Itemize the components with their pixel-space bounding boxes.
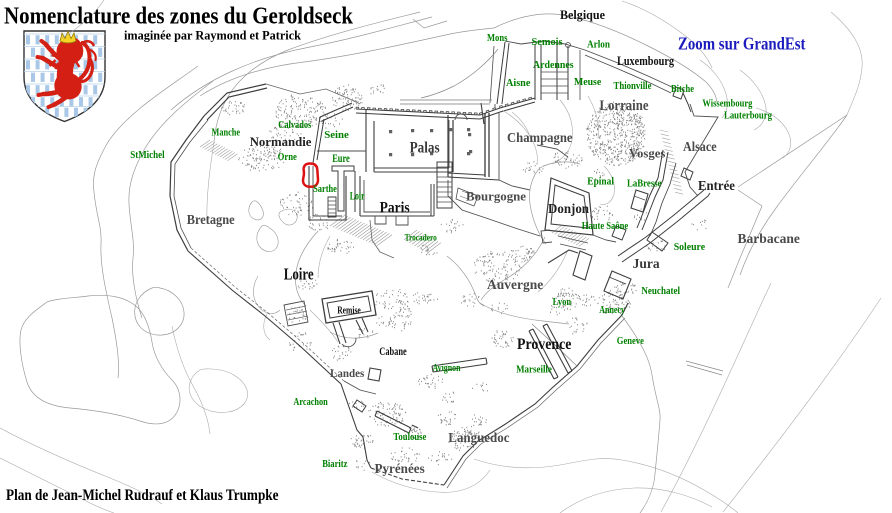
svg-text:Bitche: Bitche <box>671 83 694 95</box>
svg-text:Thionville: Thionville <box>614 81 652 92</box>
svg-text:Arcachon: Arcachon <box>293 397 328 408</box>
svg-text:StMichel: StMichel <box>130 150 165 161</box>
svg-text:Neuchatel: Neuchatel <box>641 285 680 297</box>
svg-text:Biaritz: Biaritz <box>322 459 348 470</box>
svg-text:Plan de Jean-Michel Rudrauf et: Plan de Jean-Michel Rudrauf et Klaus Tru… <box>6 487 279 504</box>
svg-text:Nomenclature des zones du Gero: Nomenclature des zones du Geroldseck <box>4 3 353 30</box>
svg-text:Epinal: Epinal <box>587 177 614 188</box>
svg-text:Belgique: Belgique <box>560 8 605 22</box>
svg-text:Sarthe: Sarthe <box>313 183 337 195</box>
svg-text:Haute Saône: Haute Saône <box>582 221 629 232</box>
svg-text:Calvados: Calvados <box>278 119 312 131</box>
svg-text:Mons: Mons <box>487 32 508 44</box>
svg-text:Entrée: Entrée <box>698 179 735 194</box>
svg-text:LaBresse: LaBresse <box>627 179 662 190</box>
svg-text:Aisne: Aisne <box>506 77 531 89</box>
svg-text:Annecy: Annecy <box>599 304 625 316</box>
svg-text:Paris: Paris <box>380 199 410 216</box>
svg-text:Arlon: Arlon <box>587 39 610 51</box>
svg-text:Bretagne: Bretagne <box>187 213 235 228</box>
svg-text:Zoom sur GrandEst: Zoom sur GrandEst <box>678 33 806 53</box>
svg-text:Geneve: Geneve <box>617 336 644 347</box>
svg-text:Pyrénées: Pyrénées <box>375 462 426 477</box>
svg-text:Soleure: Soleure <box>674 241 705 253</box>
svg-text:Donjon: Donjon <box>548 201 589 216</box>
svg-text:Orne: Orne <box>278 151 297 163</box>
svg-text:Barbacane: Barbacane <box>738 231 800 246</box>
svg-text:Semois: Semois <box>532 36 564 48</box>
svg-text:Marseille: Marseille <box>516 364 552 376</box>
svg-text:Vosges: Vosges <box>629 146 665 161</box>
svg-text:Loir: Loir <box>350 191 365 203</box>
svg-text:Champagne: Champagne <box>507 130 573 145</box>
svg-text:Manche: Manche <box>212 127 241 139</box>
svg-text:Toulouse: Toulouse <box>393 432 426 443</box>
svg-text:Lauterbourg: Lauterbourg <box>724 111 773 122</box>
svg-text:Wissembourg: Wissembourg <box>702 99 753 110</box>
svg-text:Auvergne: Auvergne <box>487 277 543 292</box>
svg-text:Luxembourg: Luxembourg <box>617 54 675 68</box>
svg-text:Ardennes: Ardennes <box>533 59 574 71</box>
svg-text:Meuse: Meuse <box>574 76 601 88</box>
svg-text:Cabane: Cabane <box>379 346 406 358</box>
svg-text:Eure: Eure <box>332 153 350 165</box>
svg-text:Lyon: Lyon <box>553 296 572 308</box>
svg-text:imaginée par Raymond et Patric: imaginée par Raymond et Patrick <box>124 29 301 43</box>
svg-text:Seine: Seine <box>324 129 349 141</box>
svg-text:Provence: Provence <box>517 336 572 353</box>
svg-text:Landes: Landes <box>330 366 365 380</box>
svg-text:Avignon: Avignon <box>433 363 461 374</box>
svg-text:Alsace: Alsace <box>683 139 717 154</box>
svg-text:Loire: Loire <box>284 264 314 283</box>
svg-text:Trocadero: Trocadero <box>405 234 437 244</box>
svg-text:Jura: Jura <box>633 257 660 272</box>
svg-text:Remise: Remise <box>337 306 361 317</box>
svg-text:Bourgogne: Bourgogne <box>466 189 526 204</box>
svg-text:Palas: Palas <box>410 139 440 156</box>
svg-text:Languedoc: Languedoc <box>448 430 509 445</box>
svg-text:Normandie: Normandie <box>250 134 312 149</box>
svg-text:Lorraine: Lorraine <box>600 98 649 114</box>
